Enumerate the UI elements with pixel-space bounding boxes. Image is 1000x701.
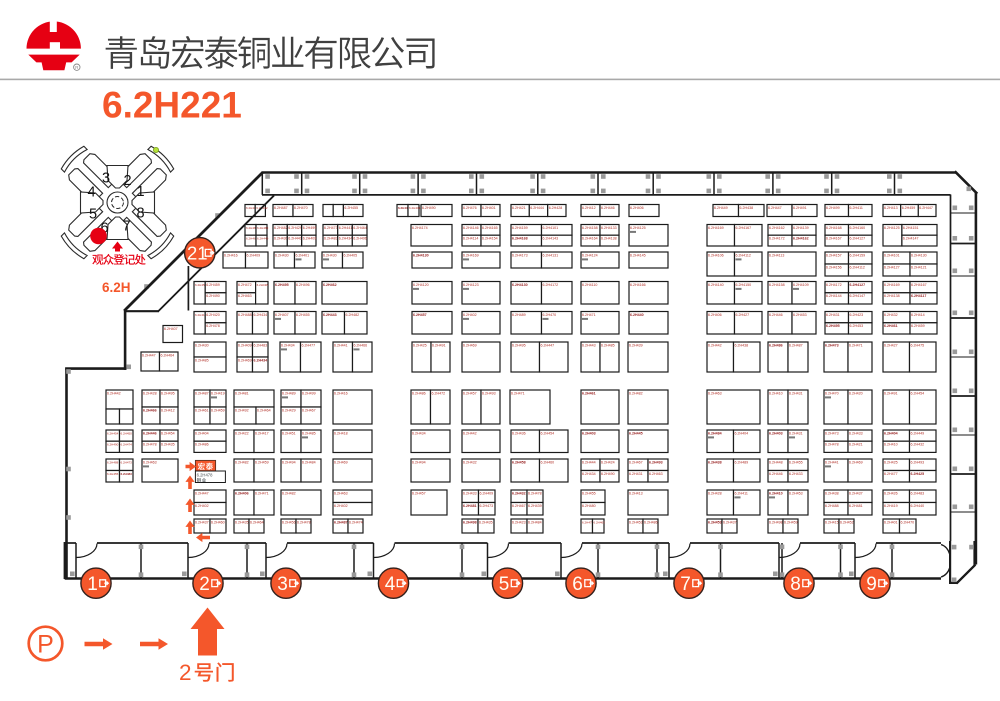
svg-text:6.2H437: 6.2H437: [195, 520, 209, 524]
svg-text:6.2H485: 6.2H485: [601, 343, 615, 347]
svg-text:6.2H459: 6.2H459: [911, 324, 925, 328]
svg-text:6.2H431: 6.2H431: [789, 431, 803, 435]
svg-text:6.2H4147: 6.2H4147: [850, 294, 866, 298]
svg-text:6.2H488: 6.2H488: [107, 460, 119, 464]
svg-text:6.2H404: 6.2H404: [884, 431, 898, 435]
svg-text:6.2H471: 6.2H471: [582, 313, 596, 317]
svg-text:6.2H460: 6.2H460: [541, 460, 555, 464]
svg-text:6.2H429: 6.2H429: [288, 226, 302, 230]
svg-text:6.2H4125: 6.2H4125: [884, 226, 900, 230]
svg-text:6.2H4123: 6.2H4123: [463, 283, 479, 287]
svg-text:6.2H437: 6.2H437: [849, 491, 863, 495]
svg-text:6.2H466: 6.2H466: [143, 408, 157, 412]
svg-text:6.2H404: 6.2H404: [409, 206, 421, 210]
svg-text:6.2H446: 6.2H446: [143, 431, 157, 435]
svg-text:6.2H425: 6.2H425: [413, 343, 427, 347]
svg-text:6.2H417: 6.2H417: [255, 431, 269, 435]
svg-text:6.2H428: 6.2H428: [708, 491, 722, 495]
svg-text:6.2H471: 6.2H471: [511, 391, 525, 395]
svg-text:6.2H4166: 6.2H4166: [630, 283, 646, 287]
svg-text:6.2H433: 6.2H433: [789, 472, 803, 476]
svg-text:6.2H473: 6.2H473: [825, 343, 839, 347]
svg-text:6.2H4154: 6.2H4154: [482, 237, 498, 241]
svg-text:6.2H472: 6.2H472: [238, 283, 252, 287]
svg-text:6.2H4167: 6.2H4167: [826, 237, 842, 241]
svg-text:6.2H469: 6.2H469: [463, 343, 477, 347]
svg-text:6.2H498: 6.2H498: [463, 520, 477, 524]
svg-text:6.2H447: 6.2H447: [142, 353, 156, 357]
svg-text:6.2H402: 6.2H402: [463, 313, 477, 317]
svg-text:6.2H4127: 6.2H4127: [884, 265, 900, 269]
svg-text:6.2H430: 6.2H430: [195, 343, 209, 347]
svg-text:6.2H422: 6.2H422: [235, 431, 249, 435]
svg-text:6.2H4109: 6.2H4109: [793, 283, 809, 287]
svg-text:6.2H463: 6.2H463: [334, 491, 348, 495]
svg-text:6.2H407: 6.2H407: [275, 313, 289, 317]
svg-text:6.2H432: 6.2H432: [512, 491, 526, 495]
svg-text:6.2H443: 6.2H443: [323, 313, 337, 317]
svg-text:6.2H4146: 6.2H4146: [463, 226, 479, 230]
svg-text:6.2H406: 6.2H406: [630, 206, 644, 210]
svg-text:6.2H475: 6.2H475: [911, 343, 925, 347]
svg-text:6.2H420: 6.2H420: [206, 313, 220, 317]
svg-text:6.2H407: 6.2H407: [164, 327, 178, 331]
svg-text:6.2H448: 6.2H448: [769, 460, 783, 464]
svg-text:6.2H490: 6.2H490: [601, 472, 615, 476]
svg-text:6.2H413: 6.2H413: [629, 491, 643, 495]
svg-text:6.2H486: 6.2H486: [195, 443, 209, 447]
svg-text:6.2H478: 6.2H478: [297, 520, 311, 524]
svg-text:6.2H434: 6.2H434: [582, 472, 596, 476]
svg-text:6.2H493: 6.2H493: [482, 391, 496, 395]
svg-text:6.2H461: 6.2H461: [884, 324, 898, 328]
svg-text:6.2H416: 6.2H416: [224, 253, 238, 257]
svg-text:6.2H485: 6.2H485: [195, 358, 209, 362]
svg-text:2: 2: [199, 574, 210, 595]
svg-text:6.2H430: 6.2H430: [323, 253, 337, 257]
svg-text:6.2H455: 6.2H455: [789, 460, 803, 464]
svg-text:6.2H490: 6.2H490: [107, 443, 119, 447]
svg-text:6.2H496: 6.2H496: [296, 283, 310, 287]
svg-text:6.2H413: 6.2H413: [884, 206, 898, 210]
svg-text:6.2H4158: 6.2H4158: [582, 226, 598, 230]
svg-text:6.2H4159: 6.2H4159: [850, 253, 866, 257]
svg-text:6.2H412: 6.2H412: [161, 408, 175, 412]
svg-text:6.2H221: 6.2H221: [102, 85, 242, 126]
svg-text:6.2H482: 6.2H482: [282, 491, 296, 495]
svg-text:6.2H487: 6.2H487: [334, 520, 348, 524]
svg-text:6.2H455: 6.2H455: [296, 313, 310, 317]
svg-text:6.2H484: 6.2H484: [302, 460, 316, 464]
svg-text:6.2H482: 6.2H482: [274, 226, 288, 230]
svg-text:6.2H495: 6.2H495: [275, 283, 289, 287]
svg-text:6.2H4138: 6.2H4138: [884, 294, 900, 298]
svg-text:6.2H449: 6.2H449: [257, 237, 269, 241]
svg-text:6.2H463: 6.2H463: [649, 472, 663, 476]
svg-text:6.2H4164: 6.2H4164: [582, 237, 598, 241]
svg-text:6.2H478: 6.2H478: [197, 472, 214, 477]
svg-text:6.2H4150: 6.2H4150: [736, 283, 752, 287]
svg-text:6.2H496: 6.2H496: [353, 237, 367, 241]
svg-text:6.2H438: 6.2H438: [825, 491, 839, 495]
svg-text:6.2H478: 6.2H478: [528, 491, 542, 495]
svg-text:6.2H454: 6.2H454: [911, 391, 925, 395]
svg-text:6.2H464: 6.2H464: [257, 408, 271, 412]
svg-text:6.2H418: 6.2H418: [334, 431, 348, 435]
svg-text:6.2H498: 6.2H498: [769, 520, 783, 524]
svg-text:6.2H441: 6.2H441: [825, 460, 839, 464]
svg-text:6.2H461: 6.2H461: [195, 408, 209, 412]
svg-text:2: 2: [123, 173, 131, 189]
svg-text:6.2H409: 6.2H409: [238, 343, 252, 347]
svg-text:6.2H481: 6.2H481: [849, 504, 863, 508]
svg-text:7: 7: [680, 574, 691, 595]
svg-text:6.2H425: 6.2H425: [911, 472, 925, 476]
svg-text:6.2H406: 6.2H406: [235, 491, 249, 495]
svg-text:6.2H473: 6.2H473: [825, 431, 839, 435]
svg-text:6.2H4165: 6.2H4165: [482, 226, 498, 230]
svg-text:6.2H467: 6.2H467: [629, 460, 643, 464]
svg-text:6.2H491: 6.2H491: [884, 391, 898, 395]
svg-text:6.2H482: 6.2H482: [235, 460, 249, 464]
svg-text:6.2H454: 6.2H454: [541, 431, 555, 435]
svg-text:6.2H457: 6.2H457: [413, 313, 427, 317]
svg-text:6.2H4120: 6.2H4120: [413, 283, 429, 287]
svg-text:6.2H419: 6.2H419: [211, 391, 225, 395]
svg-text:6.2H499: 6.2H499: [826, 206, 840, 210]
svg-text:6.2H454: 6.2H454: [161, 431, 175, 435]
svg-text:1: 1: [87, 574, 98, 595]
svg-text:6.2H4172: 6.2H4172: [543, 283, 559, 287]
svg-text:6.2H474: 6.2H474: [121, 443, 133, 447]
svg-text:6.2H487: 6.2H487: [789, 343, 803, 347]
svg-text:6.2H484: 6.2H484: [708, 431, 722, 435]
svg-text:6.2H488: 6.2H488: [825, 504, 839, 508]
svg-text:6.2H442: 6.2H442: [708, 343, 722, 347]
svg-text:6.2H471: 6.2H471: [849, 343, 863, 347]
svg-text:6.2H484: 6.2H484: [528, 520, 542, 524]
svg-text:6.2H442: 6.2H442: [107, 391, 121, 395]
svg-text:6.2H490: 6.2H490: [422, 206, 436, 210]
svg-text:6.2H463: 6.2H463: [708, 391, 722, 395]
svg-text:6.2H449: 6.2H449: [714, 206, 728, 210]
svg-text:6.2H4127: 6.2H4127: [850, 283, 866, 287]
svg-text:6.2H478: 6.2H478: [206, 324, 220, 328]
svg-text:6.2H430: 6.2H430: [275, 253, 289, 257]
svg-text:6.2H459: 6.2H459: [255, 460, 269, 464]
svg-text:6.2H4143: 6.2H4143: [543, 237, 559, 241]
svg-text:6.2H415: 6.2H415: [825, 520, 839, 524]
svg-text:6.2H445: 6.2H445: [629, 431, 643, 435]
svg-text:6.2H433: 6.2H433: [463, 491, 477, 495]
svg-text:6.2H476: 6.2H476: [463, 206, 477, 210]
svg-text:6.2H434: 6.2H434: [281, 343, 295, 347]
svg-text:6.2H483: 6.2H483: [254, 343, 268, 347]
svg-text:6.2H451: 6.2H451: [282, 431, 296, 435]
svg-text:6.2H4121: 6.2H4121: [911, 265, 927, 269]
svg-text:6.2H469: 6.2H469: [334, 460, 348, 464]
svg-text:6.2H427: 6.2H427: [884, 343, 898, 347]
svg-text:6.2H460: 6.2H460: [211, 520, 225, 524]
svg-text:6.2H462: 6.2H462: [323, 283, 337, 287]
svg-text:6.2H464: 6.2H464: [353, 226, 367, 230]
svg-text:6.2H4172: 6.2H4172: [826, 283, 842, 287]
svg-text:6.2H428: 6.2H428: [143, 391, 157, 395]
svg-text:6.2H442: 6.2H442: [463, 431, 477, 435]
svg-text:6.2H494: 6.2H494: [282, 460, 296, 464]
svg-text:6.2H438: 6.2H438: [708, 460, 722, 464]
svg-text:6.2H483: 6.2H483: [121, 472, 133, 476]
svg-text:6.2H4169: 6.2H4169: [884, 283, 900, 287]
svg-text:6.2H486: 6.2H486: [412, 391, 426, 395]
svg-text:6.2H440: 6.2H440: [911, 504, 925, 508]
svg-text:6.2H463: 6.2H463: [238, 294, 252, 298]
svg-text:6.2H453: 6.2H453: [708, 520, 722, 524]
svg-text:21: 21: [187, 242, 208, 263]
svg-text:7: 7: [122, 219, 130, 235]
svg-text:6.2H495: 6.2H495: [826, 324, 840, 328]
svg-text:6.2H432: 6.2H432: [463, 460, 477, 464]
svg-text:3: 3: [277, 574, 288, 595]
svg-text:6.2H459: 6.2H459: [902, 206, 916, 210]
svg-text:6.2H431: 6.2H431: [826, 313, 840, 317]
svg-text:6.2H447: 6.2H447: [919, 206, 933, 210]
svg-text:6.2H441: 6.2H441: [288, 237, 302, 241]
svg-text:6.2H410: 6.2H410: [769, 491, 783, 495]
svg-text:6.2H489: 6.2H489: [735, 460, 749, 464]
svg-text:6.2H477: 6.2H477: [884, 472, 898, 476]
svg-text:5: 5: [499, 574, 510, 595]
svg-text:6.2H499: 6.2H499: [302, 391, 316, 395]
svg-text:6.2H425: 6.2H425: [884, 460, 898, 464]
svg-text:6.2H453: 6.2H453: [789, 491, 803, 495]
svg-text:6.2H424: 6.2H424: [601, 460, 615, 464]
svg-text:6.2H438: 6.2H438: [257, 283, 269, 287]
svg-text:6.2H489: 6.2H489: [282, 391, 296, 395]
svg-text:6.2H477: 6.2H477: [302, 343, 316, 347]
svg-text:6.2H439: 6.2H439: [528, 504, 542, 508]
svg-text:6.2H457: 6.2H457: [412, 491, 426, 495]
svg-text:6.2H4144: 6.2H4144: [826, 294, 842, 298]
svg-text:6.2H470: 6.2H470: [543, 313, 557, 317]
svg-text:6.2H4147: 6.2H4147: [903, 237, 919, 241]
svg-text:6.2H482: 6.2H482: [346, 313, 360, 317]
svg-text:6.2H416: 6.2H416: [334, 391, 348, 395]
svg-text:3: 3: [102, 171, 110, 187]
svg-text:6.2H494: 6.2H494: [412, 460, 426, 464]
svg-text:6.2H420: 6.2H420: [849, 391, 863, 395]
svg-text:6.2H403: 6.2H403: [769, 431, 783, 435]
svg-text:6.2H4117: 6.2H4117: [911, 294, 926, 298]
svg-text:6.2H473: 6.2H473: [324, 226, 338, 230]
svg-text:6.2H4167: 6.2H4167: [736, 226, 752, 230]
svg-text:6.2H409: 6.2H409: [480, 491, 494, 495]
svg-text:6.2H481: 6.2H481: [463, 504, 477, 508]
svg-text:6.2H449: 6.2H449: [911, 431, 925, 435]
svg-text:6.2H4139: 6.2H4139: [793, 226, 809, 230]
svg-text:6.2H4157: 6.2H4157: [826, 253, 842, 257]
svg-text:6.2H469: 6.2H469: [849, 460, 863, 464]
svg-text:6.2H414: 6.2H414: [911, 313, 925, 317]
svg-text:6.2H4169: 6.2H4169: [463, 253, 479, 257]
svg-text:6.2H499: 6.2H499: [303, 226, 317, 230]
svg-text:6.2H412: 6.2H412: [582, 206, 596, 210]
svg-text:6.2H428: 6.2H428: [549, 206, 563, 210]
svg-text:6.2H410: 6.2H410: [884, 443, 898, 447]
svg-text:6.2H431: 6.2H431: [629, 472, 643, 476]
svg-text:6.2H483: 6.2H483: [324, 237, 338, 241]
svg-text:6.2H446: 6.2H446: [769, 472, 783, 476]
svg-text:6.2H493: 6.2H493: [649, 460, 663, 464]
svg-text:6.2H411: 6.2H411: [735, 491, 748, 495]
svg-text:6.2H434: 6.2H434: [254, 358, 268, 362]
svg-text:6.2H409: 6.2H409: [247, 253, 261, 257]
svg-text:6.2H447: 6.2H447: [195, 491, 209, 495]
svg-text:6.2H493: 6.2H493: [911, 460, 925, 464]
svg-text:6.2H: 6.2H: [102, 280, 131, 295]
svg-text:6.2H4113: 6.2H4113: [769, 253, 784, 257]
svg-text:6.2H447: 6.2H447: [768, 206, 782, 210]
svg-text:6.2H459: 6.2H459: [206, 283, 220, 287]
svg-text:6.2H434: 6.2H434: [339, 237, 353, 241]
svg-text:6.2H4158: 6.2H4158: [769, 283, 785, 287]
svg-text:6.2H4169: 6.2H4169: [708, 226, 724, 230]
svg-text:6.2H470: 6.2H470: [825, 391, 839, 395]
svg-text:6.2H473: 6.2H473: [121, 460, 133, 464]
svg-text:6.2H436: 6.2H436: [512, 431, 526, 435]
svg-text:6.2H4127: 6.2H4127: [850, 237, 866, 241]
svg-text:6.2H4130: 6.2H4130: [512, 283, 528, 287]
svg-text:6.2H446: 6.2H446: [769, 313, 783, 317]
svg-text:6.2H432: 6.2H432: [884, 313, 898, 317]
svg-text:6.2H4130: 6.2H4130: [911, 253, 927, 257]
svg-text:9: 9: [866, 574, 877, 595]
svg-text:6.2H434: 6.2H434: [412, 431, 426, 435]
svg-text:6.2H429: 6.2H429: [282, 408, 296, 412]
svg-text:6.2H447: 6.2H447: [541, 343, 555, 347]
svg-text:6.2H492: 6.2H492: [235, 408, 249, 412]
svg-text:6.2H495: 6.2H495: [512, 343, 526, 347]
svg-text:6.2H458: 6.2H458: [512, 460, 526, 464]
svg-text:6.2H4145: 6.2H4145: [630, 253, 646, 257]
svg-text:6.2H483: 6.2H483: [257, 226, 269, 230]
svg-text:6.2H406: 6.2H406: [708, 313, 722, 317]
svg-text:6.2H4130: 6.2H4130: [413, 253, 429, 257]
svg-text:P: P: [37, 630, 54, 658]
svg-text:6.2H4101: 6.2H4101: [884, 253, 900, 257]
svg-text:6.2H4131: 6.2H4131: [543, 253, 559, 257]
svg-text:6.2H444: 6.2H444: [530, 206, 544, 210]
svg-text:2: 2: [179, 660, 192, 685]
svg-text:6.2H423: 6.2H423: [850, 313, 864, 317]
svg-text:6.2H4138: 6.2H4138: [601, 237, 617, 241]
svg-text:5: 5: [89, 207, 97, 223]
svg-text:6.2H437: 6.2H437: [723, 520, 737, 524]
svg-text:6.2H4159: 6.2H4159: [512, 226, 528, 230]
svg-text:1: 1: [136, 184, 144, 200]
svg-text:6.2H491: 6.2H491: [793, 206, 807, 210]
svg-text:6.2H467: 6.2H467: [302, 408, 316, 412]
svg-text:6.2H4125: 6.2H4125: [630, 226, 646, 230]
svg-text:6.2H4133: 6.2H4133: [601, 226, 617, 230]
svg-text:6.2H423: 6.2H423: [512, 520, 526, 524]
svg-text:6.2H486: 6.2H486: [769, 343, 783, 347]
svg-text:6.2H472: 6.2H472: [432, 391, 446, 395]
svg-text:6.2H4174: 6.2H4174: [412, 226, 428, 230]
svg-text:6.2H478: 6.2H478: [825, 443, 839, 447]
svg-text:6.2H491: 6.2H491: [432, 343, 446, 347]
svg-text:6.2H435: 6.2H435: [161, 443, 175, 447]
svg-text:6.2H457: 6.2H457: [463, 391, 477, 395]
svg-text:6.2H443: 6.2H443: [582, 343, 596, 347]
svg-text:6.2H4173: 6.2H4173: [512, 253, 528, 257]
svg-text:4: 4: [87, 185, 95, 201]
svg-text:6.2H474: 6.2H474: [349, 520, 363, 524]
svg-text:6.2H4156: 6.2H4156: [826, 265, 842, 269]
svg-text:6.2H459: 6.2H459: [784, 520, 798, 524]
svg-text:6.2H461: 6.2H461: [582, 391, 596, 395]
svg-text:6.2H4112: 6.2H4112: [850, 265, 865, 269]
svg-text:6.2H4160: 6.2H4160: [850, 226, 866, 230]
svg-text:6.2H463: 6.2H463: [594, 520, 606, 524]
svg-text:6.2H450: 6.2H450: [121, 431, 133, 435]
svg-text:6.2H454: 6.2H454: [107, 431, 119, 435]
svg-text:6.2H478: 6.2H478: [143, 443, 157, 447]
svg-text:6.2H480: 6.2H480: [582, 504, 596, 508]
svg-text:6.2H4151: 6.2H4151: [903, 226, 919, 230]
svg-text:6.2H433: 6.2H433: [849, 431, 863, 435]
svg-text:6.2H486: 6.2H486: [644, 520, 658, 524]
svg-text:6.2H471: 6.2H471: [255, 491, 269, 495]
svg-text:6.2H466: 6.2H466: [354, 343, 368, 347]
svg-text:6.2H439: 6.2H439: [629, 343, 643, 347]
svg-text:6.2H4162: 6.2H4162: [769, 226, 785, 230]
svg-text:6.2H4172: 6.2H4172: [769, 237, 785, 241]
svg-text:6.2H4168: 6.2H4168: [826, 226, 842, 230]
svg-text:6.2H467: 6.2H467: [512, 504, 526, 508]
svg-text:6.2H410: 6.2H410: [769, 391, 783, 395]
svg-text:6.2H4106: 6.2H4106: [708, 253, 724, 257]
svg-text:6.2H489: 6.2H489: [512, 313, 526, 317]
svg-text:6: 6: [572, 574, 583, 595]
svg-text:6.2H421: 6.2H421: [849, 443, 863, 447]
svg-text:6.2H435: 6.2H435: [479, 520, 493, 524]
svg-text:6.2H444: 6.2H444: [582, 460, 596, 464]
svg-text:6.2H487: 6.2H487: [195, 391, 209, 395]
svg-text:6.2H403: 6.2H403: [582, 431, 596, 435]
svg-text:6.2H464: 6.2H464: [250, 520, 264, 524]
svg-text:6.2H463: 6.2H463: [143, 460, 157, 464]
svg-text:6.2H4114: 6.2H4114: [463, 237, 478, 241]
svg-text:6.2H434: 6.2H434: [254, 313, 268, 317]
svg-text:6.2H473: 6.2H473: [480, 504, 494, 508]
svg-text:6.2H4124: 6.2H4124: [582, 253, 598, 257]
svg-text:6.2H427: 6.2H427: [736, 313, 750, 317]
svg-text:6.2H4140: 6.2H4140: [708, 283, 724, 287]
svg-text:6.2H446: 6.2H446: [601, 206, 615, 210]
svg-text:6.2H411: 6.2H411: [850, 206, 863, 210]
svg-text:6.2H455: 6.2H455: [582, 491, 596, 495]
svg-text:6.2H438: 6.2H438: [740, 206, 754, 210]
svg-text:6.2H483: 6.2H483: [911, 491, 925, 495]
svg-text:6.2H455: 6.2H455: [344, 206, 358, 210]
svg-text:6.2H432: 6.2H432: [911, 443, 925, 447]
svg-text:6.2H469: 6.2H469: [238, 358, 252, 362]
svg-text:6.2H4168: 6.2H4168: [512, 237, 528, 241]
svg-text:6.2H430: 6.2H430: [274, 237, 288, 241]
svg-text:6.2H4167: 6.2H4167: [911, 283, 927, 287]
svg-text:6.2H459: 6.2H459: [211, 408, 225, 412]
